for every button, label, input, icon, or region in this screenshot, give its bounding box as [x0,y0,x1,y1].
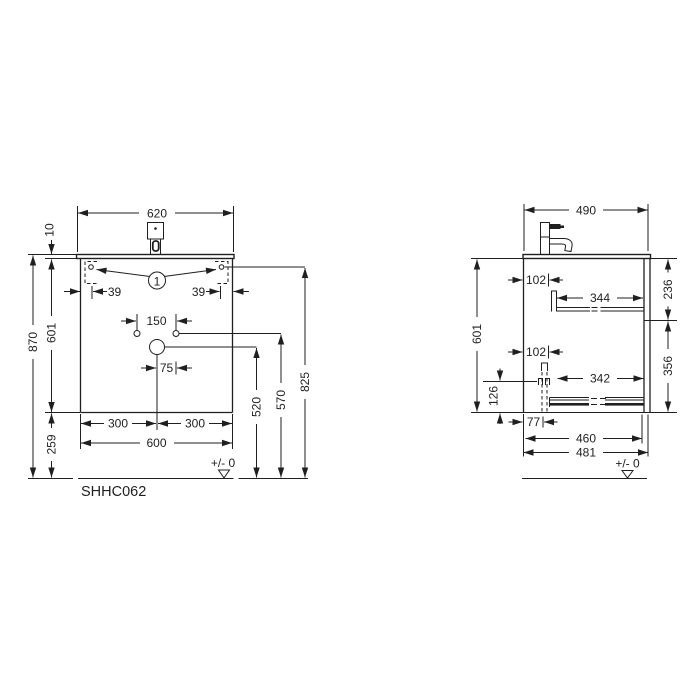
dim-label-490: 490 [576,204,596,218]
dim-label-342: 342 [590,372,610,386]
dim-lower-rail-length: 342 [558,372,644,386]
dim-label-126: 126 [487,386,501,406]
dim-carcass-width: 600 [81,436,232,450]
dim-label-236: 236 [661,279,675,299]
technical-drawing-canvas: 620 1 [0,0,700,700]
dim-upper-rail-setback: 102 [508,273,563,287]
model-code: SHHC062 [81,484,146,500]
faucet-side-icon [541,223,573,255]
dim-label-77: 77 [527,415,541,429]
dim-top-depth: 490 [524,204,648,252]
dim-fixing-offset-right: 39 [192,285,249,299]
datum-side: +/- 0 [522,457,647,479]
dim-fixing-height: 825 [298,268,312,478]
extension-lines-side [471,259,677,413]
dim-upper-rail-length: 344 [557,291,643,305]
countertop-side [523,255,651,259]
trap-hidden-lines [539,363,550,412]
dim-label-601-front: 601 [45,323,59,343]
dim-half-width-right: 300 [158,417,232,431]
dim-label-39-right: 39 [192,285,206,299]
dim-hole-spacing: 150 [121,314,192,330]
dim-label-102-top: 102 [526,273,546,287]
dim-total-height: 870 [26,256,40,478]
dim-label-600: 600 [146,436,166,450]
dim-label-570: 570 [274,390,288,410]
dim-label-460: 460 [576,432,596,446]
dim-label-870: 870 [26,332,40,352]
fixing-hole-left [85,262,97,284]
dim-countertop-thickness: 10 [43,223,57,254]
dim-plinth-clearance: 259 [45,414,59,478]
datum-label-side: +/- 0 [615,457,640,471]
dim-lower-rail-setback: 102 [508,345,563,359]
lower-rail [550,396,644,408]
drain-hole [150,340,165,355]
dim-lower-section-height: 356 [661,322,675,412]
dim-drain-to-hole: 75 [141,361,192,375]
countertop-front [77,255,235,259]
dim-trap-setback: 77 [509,414,558,457]
dim-label-150: 150 [146,314,166,328]
dim-label-601-side: 601 [470,324,484,344]
side-view: 490 601 102 [470,204,677,479]
dim-label-825: 825 [298,372,312,392]
dim-label-259: 259 [45,434,59,454]
dim-front-carcass-height: 601 [45,260,59,413]
dim-side-carcass-height: 601 [470,260,484,412]
balloon-label: 1 [154,275,161,289]
dim-label-39-left: 39 [108,285,122,299]
vanity-dimension-drawing: 620 1 [0,0,700,700]
dim-label-75: 75 [160,361,174,375]
dim-label-300-left: 300 [108,417,128,431]
dim-label-620: 620 [147,207,167,221]
dim-holes-height: 570 [274,335,288,478]
dim-fixing-offset-left: 39 [64,285,121,299]
faucet-front-icon [148,223,164,255]
dim-label-481: 481 [576,446,596,460]
dim-label-356: 356 [661,356,675,376]
fixing-hole-right [215,262,228,284]
datum-triangle-front [219,470,230,478]
dim-label-520: 520 [250,397,264,417]
dim-label-344: 344 [590,291,610,305]
tap-hole-right [173,331,179,337]
tap-hole-left [134,331,140,337]
front-view: 620 1 [26,206,312,500]
datum-label-front: +/- 0 [211,456,236,470]
dim-label-300-right: 300 [185,417,205,431]
dim-drain-height: 520 [250,348,264,478]
datum-triangle-side [622,471,633,479]
datum-front: +/- 0 [28,456,308,479]
dim-upper-section-height: 236 [661,260,675,320]
dim-half-width-left: 300 [81,417,156,431]
dim-label-10: 10 [43,223,57,237]
dim-label-102-bottom: 102 [526,345,546,359]
